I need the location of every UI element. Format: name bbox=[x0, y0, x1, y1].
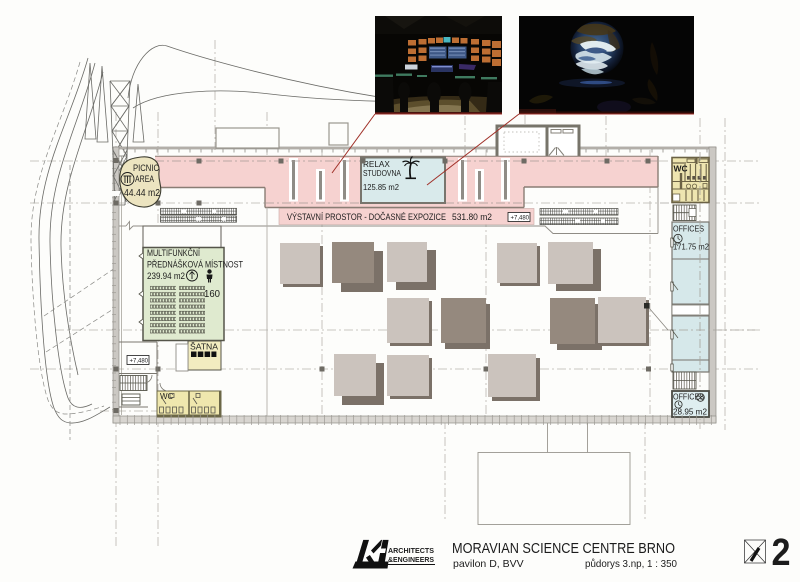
svg-text:160: 160 bbox=[204, 288, 220, 300]
svg-text:OFFICES: OFFICES bbox=[673, 225, 704, 234]
svg-text:AREA: AREA bbox=[135, 174, 154, 184]
svg-text:MORAVIAN SCIENCE CENTRE BRNO: MORAVIAN SCIENCE CENTRE BRNO bbox=[452, 540, 675, 557]
svg-text:28.95 m2: 28.95 m2 bbox=[673, 408, 708, 417]
svg-text:44.44 m2: 44.44 m2 bbox=[124, 188, 160, 199]
svg-text:239.94 m2: 239.94 m2 bbox=[147, 271, 185, 281]
svg-text:PICNIC: PICNIC bbox=[133, 163, 159, 173]
svg-text:+7,480: +7,480 bbox=[130, 359, 149, 365]
svg-text:+7,480: +7,480 bbox=[511, 216, 530, 222]
svg-text:WC: WC bbox=[674, 164, 688, 174]
svg-text:pavilon D, BVV: pavilon D, BVV bbox=[453, 558, 524, 570]
svg-text:STUDOVNA: STUDOVNA bbox=[363, 169, 401, 178]
svg-text:ŠATNA: ŠATNA bbox=[190, 342, 218, 352]
svg-text:531.80 m2: 531.80 m2 bbox=[452, 212, 492, 223]
svg-text:171.75 m2: 171.75 m2 bbox=[673, 243, 710, 252]
svg-text:125.85 m2: 125.85 m2 bbox=[363, 183, 399, 192]
svg-text:ARCHITECTS: ARCHITECTS bbox=[388, 546, 434, 555]
svg-text:&ENGINEERS: &ENGINEERS bbox=[388, 555, 434, 564]
svg-text:PŘEDNÁŠKOVÁ MÍSTNOST: PŘEDNÁŠKOVÁ MÍSTNOST bbox=[147, 260, 243, 270]
svg-text:MULTIFUNKČNÍ: MULTIFUNKČNÍ bbox=[147, 248, 200, 258]
svg-text:půdorys 3.np, 1 : 350: půdorys 3.np, 1 : 350 bbox=[585, 558, 677, 570]
svg-text:VÝSTAVNÍ PROSTOR - DOČASNÉ EXP: VÝSTAVNÍ PROSTOR - DOČASNÉ EXPOZICE bbox=[287, 212, 446, 223]
svg-text:2: 2 bbox=[772, 532, 791, 574]
svg-text:RELAX: RELAX bbox=[363, 160, 390, 169]
